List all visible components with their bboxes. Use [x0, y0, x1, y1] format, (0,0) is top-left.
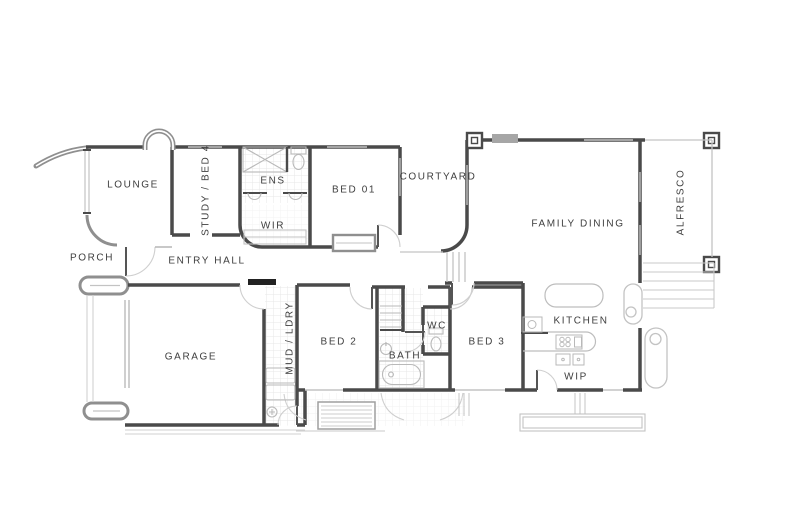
- lounge-window: [85, 150, 89, 213]
- pantry-shelves: [556, 354, 584, 365]
- cooktop: [556, 335, 582, 349]
- floor-plan: LOUNGE STUDY / BED 4 ENS WIR BED 01 COUR…: [0, 0, 790, 527]
- garage-entry-door-leaf: [248, 279, 276, 285]
- step-lines: [459, 393, 585, 416]
- room-label-porch: PORCH: [70, 253, 114, 264]
- garage-door: [125, 300, 129, 388]
- corner-unit: [523, 317, 542, 332]
- room-label-bed2: BED 2: [321, 337, 358, 348]
- room-label-entry-hall: ENTRY HALL: [168, 256, 245, 267]
- walls: [86, 140, 645, 425]
- rear-glass-door: [624, 284, 642, 324]
- window-seat: [333, 235, 375, 251]
- bbq: [492, 134, 518, 143]
- room-label-mud-ldry: MUD / LDRY: [285, 301, 296, 375]
- kitchen-island: [545, 284, 603, 307]
- room-label-kitchen: KITCHEN: [553, 316, 608, 327]
- planter: [520, 414, 645, 431]
- room-label-garage: GARAGE: [165, 352, 217, 363]
- curved-blade-wall: [36, 148, 86, 166]
- courtyard-edge: [400, 252, 465, 282]
- room-label-lounge: LOUNGE: [107, 180, 159, 191]
- room-label-study-bed4: STUDY / BED 4: [201, 144, 212, 236]
- room-label-ens: ENS: [260, 176, 285, 187]
- room-label-bath: BATH: [389, 351, 421, 362]
- floor-plan-drawing: [0, 0, 790, 527]
- column-icon: [704, 257, 719, 272]
- room-label-courtyard: COURTYARD: [400, 172, 477, 183]
- room-label-family-dining: FAMILY DINING: [531, 219, 624, 230]
- room-label-bed3: BED 3: [469, 337, 506, 348]
- feature-arch: [145, 131, 173, 150]
- room-label-bed01: BED 01: [332, 185, 376, 196]
- water-tank: [645, 328, 667, 388]
- column-icon: [467, 133, 482, 148]
- room-label-wir: WIR: [261, 221, 285, 232]
- room-label-alfresco: ALFRESCO: [676, 169, 687, 236]
- room-label-wc: WC: [427, 321, 447, 332]
- room-label-wip: WIP: [564, 372, 588, 383]
- lounge-corner-curve: [87, 215, 117, 245]
